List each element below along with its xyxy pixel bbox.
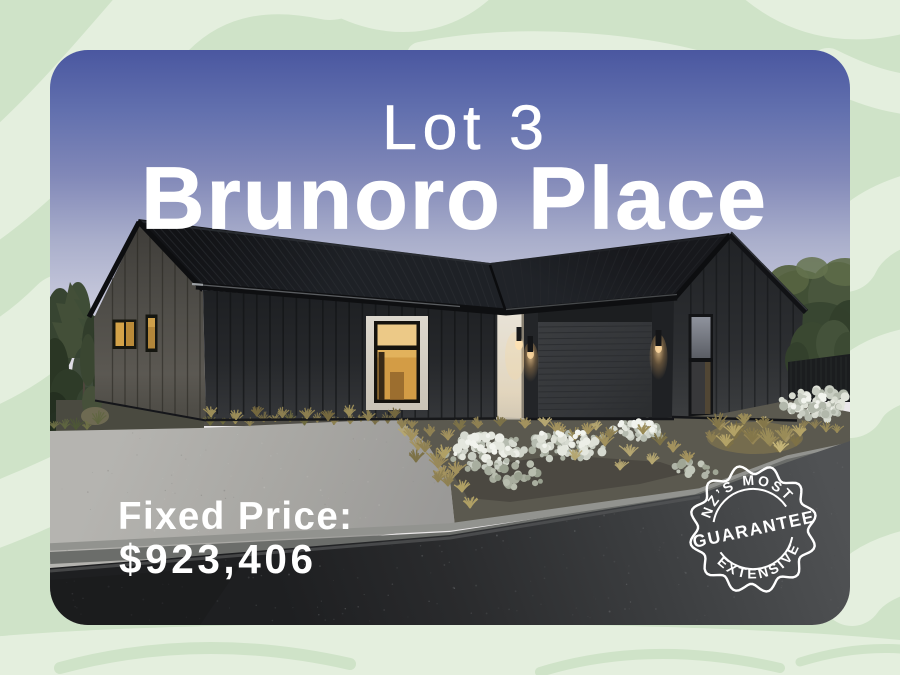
svg-text:Fixed Price:: Fixed Price:	[118, 495, 352, 538]
svg-text:Brunoro Place: Brunoro Place	[141, 149, 766, 248]
svg-text:$923,406: $923,406	[119, 536, 313, 582]
